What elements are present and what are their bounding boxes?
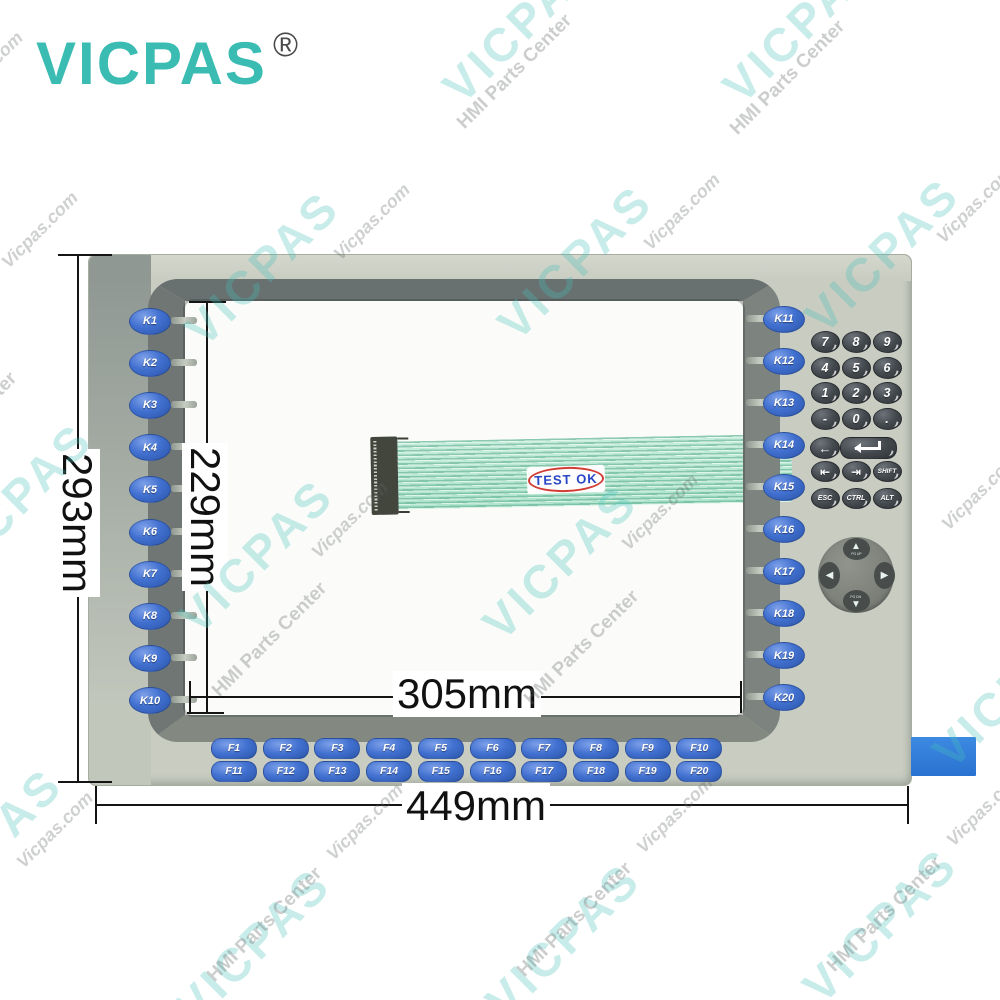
key-enter: [840, 437, 897, 459]
key-f20: F20: [676, 761, 722, 782]
key-k14-label: K14: [774, 439, 794, 451]
key-esc: ESC: [811, 488, 840, 509]
numpad-key-3-label: 3: [884, 386, 891, 400]
key-f14: F14: [366, 761, 412, 782]
key-alt: ALT: [873, 488, 902, 509]
key-f15-label: F15: [432, 765, 450, 777]
left-arrow-icon: ◀: [826, 571, 834, 580]
dim-tick-305-left: [189, 681, 191, 714]
key-shift: SHIFT: [873, 461, 902, 482]
key-f18-label: F18: [587, 765, 605, 777]
key-k19-label: K19: [774, 650, 794, 662]
dim-tick-449-right: [907, 786, 909, 824]
key-f17-label: F17: [535, 765, 553, 777]
watermark-vicpas-com: Vicpas.com: [329, 179, 414, 264]
key-home-label: ⇤: [820, 465, 830, 479]
key-f7: F7: [521, 738, 567, 759]
directional-pad: ▲ PG UP PG DN ▼ ◀ ▶: [818, 537, 894, 613]
key-k16: K16: [763, 516, 805, 543]
watermark-vicpas-com: Vicpas.com: [932, 162, 1000, 247]
key-f9: F9: [625, 738, 671, 759]
tick-k1: [171, 317, 197, 324]
numpad-key-1: 1: [811, 382, 840, 404]
key-f1-label: F1: [228, 742, 240, 754]
key-f18: F18: [573, 761, 619, 782]
numpad-key-5-label: 5: [853, 361, 860, 375]
key-k2: K2: [129, 350, 171, 377]
numpad-key-6-label: 6: [884, 361, 891, 375]
key-alt-label: ALT: [880, 495, 893, 502]
numpad-key-3: 3: [873, 382, 902, 404]
dim-tick-305-right: [740, 681, 742, 713]
key-f5: F5: [418, 738, 464, 759]
watermark-vicpas-com: Vicpas.com: [0, 27, 28, 112]
tick-k2: [171, 359, 197, 366]
key-f9-label: F9: [641, 742, 653, 754]
key-f20-label: F20: [690, 765, 708, 777]
key-f8: F8: [573, 738, 619, 759]
dim-label-229mm: 229mm: [182, 443, 228, 591]
numpad-key-minus: -: [811, 408, 840, 430]
watermark-vicpas: VICPAS: [431, 0, 608, 114]
dim-tick-293-top: [58, 254, 112, 256]
key-k9-label: K9: [143, 653, 157, 665]
test-ok-stamp: TEST OK: [527, 465, 606, 495]
key-f16: F16: [470, 761, 516, 782]
watermark-vicpas-com: Vicpas.com: [0, 187, 83, 272]
key-backspace-label: ←: [819, 441, 832, 456]
vicpas-logo: VICPAS®: [36, 26, 298, 98]
key-f19-label: F19: [639, 765, 657, 777]
vicpas-logo-text: VICPAS: [36, 30, 267, 97]
key-shift-label: SHIFT: [878, 468, 897, 475]
watermark-vicpas: VICPAS: [791, 836, 968, 1000]
watermark-vicpas-com: Vicpas.com: [322, 779, 407, 864]
key-ctrl-label: CTRL: [847, 495, 866, 502]
numpad-key-5: 5: [842, 357, 871, 379]
dim-tick-293-bottom: [58, 781, 112, 783]
dim-label-449mm: 449mm: [402, 783, 550, 829]
numpad-key-2: 2: [842, 382, 871, 404]
key-k13: K13: [763, 390, 805, 417]
dim-tick-229-bottom: [187, 712, 224, 714]
key-k6: K6: [129, 519, 171, 546]
key-f14-label: F14: [380, 765, 398, 777]
key-k18: K18: [763, 600, 805, 627]
watermark-vicpas: VICPAS: [474, 851, 651, 1000]
key-k6-label: K6: [143, 526, 157, 538]
numpad-key-8: 8: [842, 331, 871, 353]
numpad-key-9: 9: [873, 331, 902, 353]
numpad-key-0-label: 0: [853, 412, 860, 426]
key-f1: F1: [211, 738, 257, 759]
key-k7-label: K7: [143, 568, 157, 580]
key-f6: F6: [470, 738, 516, 759]
watermark-hmi-parts-center: HMI Parts Center: [513, 858, 637, 982]
tick-k3: [171, 401, 197, 408]
key-k15-label: K15: [774, 481, 794, 493]
key-f8-label: F8: [590, 742, 602, 754]
key-f5-label: F5: [435, 742, 447, 754]
panel-top-strip: [89, 255, 911, 281]
watermark-vicpas: VICPAS: [164, 856, 341, 1000]
blue-pull-tab: [911, 737, 976, 776]
key-k4: K4: [129, 434, 171, 461]
key-f10-label: F10: [690, 742, 708, 754]
key-k11-label: K11: [774, 313, 793, 325]
up-arrow-icon: ▲: [851, 542, 861, 551]
key-k16-label: K16: [774, 524, 794, 536]
numpad-key-1-label: 1: [822, 386, 829, 400]
key-f4: F4: [366, 738, 412, 759]
numpad-key-4-label: 4: [822, 361, 829, 375]
key-f3: F3: [314, 738, 360, 759]
numpad-key-7: 7: [811, 331, 840, 353]
key-k12: K12: [763, 348, 805, 375]
numpad-key-8-label: 8: [853, 335, 860, 349]
dpad-right-key: ▶: [874, 562, 895, 589]
numpad-key-dot: .: [873, 408, 902, 430]
key-esc-label: ESC: [818, 495, 832, 502]
watermark-hmi-parts-center: HMI Parts Center: [0, 368, 22, 492]
key-f12: F12: [263, 761, 309, 782]
key-f3-label: F3: [331, 742, 343, 754]
key-k14: K14: [763, 432, 805, 459]
pg-up-label: PG UP: [851, 552, 861, 555]
numpad-key-dot-label: .: [885, 412, 888, 426]
numpad-key-2-label: 2: [853, 386, 860, 400]
numpad-key-9-label: 9: [884, 335, 891, 349]
key-k18-label: K18: [774, 608, 794, 620]
key-k7: K7: [129, 561, 171, 588]
key-k17-label: K17: [774, 566, 794, 578]
tick-k9: [171, 654, 197, 661]
key-k8-label: K8: [143, 610, 157, 622]
watermark-hmi-parts-center: HMI Parts Center: [726, 16, 850, 140]
watermark-vicpas-com: Vicpas.com: [639, 169, 724, 254]
key-f12-label: F12: [277, 765, 295, 777]
display-bezel-inner-edge: [183, 299, 745, 717]
key-end-label: ⇥: [851, 465, 861, 479]
key-ctrl: CTRL: [842, 488, 871, 509]
numpad-key-minus-label: -: [823, 412, 827, 426]
key-k8: K8: [129, 603, 171, 630]
key-k2-label: K2: [143, 357, 157, 369]
key-k13-label: K13: [774, 397, 794, 409]
key-k4-label: K4: [143, 442, 157, 454]
watermark-vicpas: VICPAS: [711, 0, 888, 114]
numpad-key-4: 4: [811, 357, 840, 379]
dim-tick-229-top: [189, 301, 226, 303]
watermark-hmi-parts-center: HMI Parts Center: [453, 10, 577, 134]
pg-dn-label: PG DN: [851, 595, 862, 598]
key-f7-label: F7: [538, 742, 550, 754]
down-arrow-icon: ▼: [851, 600, 861, 609]
key-f15: F15: [418, 761, 464, 782]
product-photo-membrane-keypad: VICPAS® TEST OK K1K2K3K4K5K6K7K8K9K10K11…: [0, 0, 1000, 1000]
key-home: ⇤: [811, 461, 840, 482]
key-k3: K3: [129, 392, 171, 419]
key-k1-label: K1: [143, 315, 157, 327]
watermark-hmi-parts-center: HMI Parts Center: [203, 863, 327, 987]
key-k9: K9: [129, 645, 171, 672]
key-f17: F17: [521, 761, 567, 782]
key-end: ⇥: [842, 461, 871, 482]
key-f10: F10: [676, 738, 722, 759]
dpad-down-key: PG DN ▼: [843, 590, 870, 612]
tick-k8: [171, 612, 197, 619]
watermark-vicpas: VICPAS: [0, 756, 74, 933]
numpad-key-7-label: 7: [822, 335, 829, 349]
watermark-hmi-parts-center: HMI Parts Center: [823, 853, 947, 977]
key-k1: K1: [129, 308, 171, 335]
key-backspace: ←: [810, 437, 840, 459]
key-f19: F19: [625, 761, 671, 782]
dim-label-293mm: 293mm: [54, 449, 100, 597]
right-arrow-icon: ▶: [881, 571, 889, 580]
watermark-vicpas-com: Vicpas.com: [942, 765, 1000, 850]
enter-arrow-icon: [851, 442, 885, 454]
test-ok-text: TEST OK: [534, 471, 598, 488]
numpad-key-6: 6: [873, 357, 902, 379]
key-k12-label: K12: [774, 355, 794, 367]
key-k17: K17: [763, 558, 805, 585]
key-f2: F2: [263, 738, 309, 759]
dim-tick-449-left: [95, 786, 97, 824]
dpad-left-key: ◀: [819, 562, 840, 589]
dpad-up-key: ▲ PG UP: [843, 538, 870, 560]
key-k10-label: K10: [140, 695, 160, 707]
numpad-key-0: 0: [842, 408, 871, 430]
key-f11: F11: [211, 761, 257, 782]
watermark-vicpas-com: Vicpas.com: [937, 449, 1000, 534]
key-f2-label: F2: [280, 742, 292, 754]
registered-trademark-icon: ®: [273, 26, 298, 64]
key-k15: K15: [763, 474, 805, 501]
key-f6-label: F6: [486, 742, 498, 754]
key-k20-label: K20: [774, 692, 794, 704]
key-f13: F13: [314, 761, 360, 782]
key-f13-label: F13: [328, 765, 346, 777]
key-f4-label: F4: [383, 742, 395, 754]
watermark-vicpas-com: Vicpas.com: [12, 787, 97, 872]
key-f11-label: F11: [225, 765, 242, 777]
key-k5-label: K5: [143, 484, 157, 496]
dim-label-305mm: 305mm: [393, 671, 541, 717]
key-k3-label: K3: [143, 399, 157, 411]
key-f16-label: F16: [483, 765, 501, 777]
key-k11: K11: [763, 306, 805, 333]
